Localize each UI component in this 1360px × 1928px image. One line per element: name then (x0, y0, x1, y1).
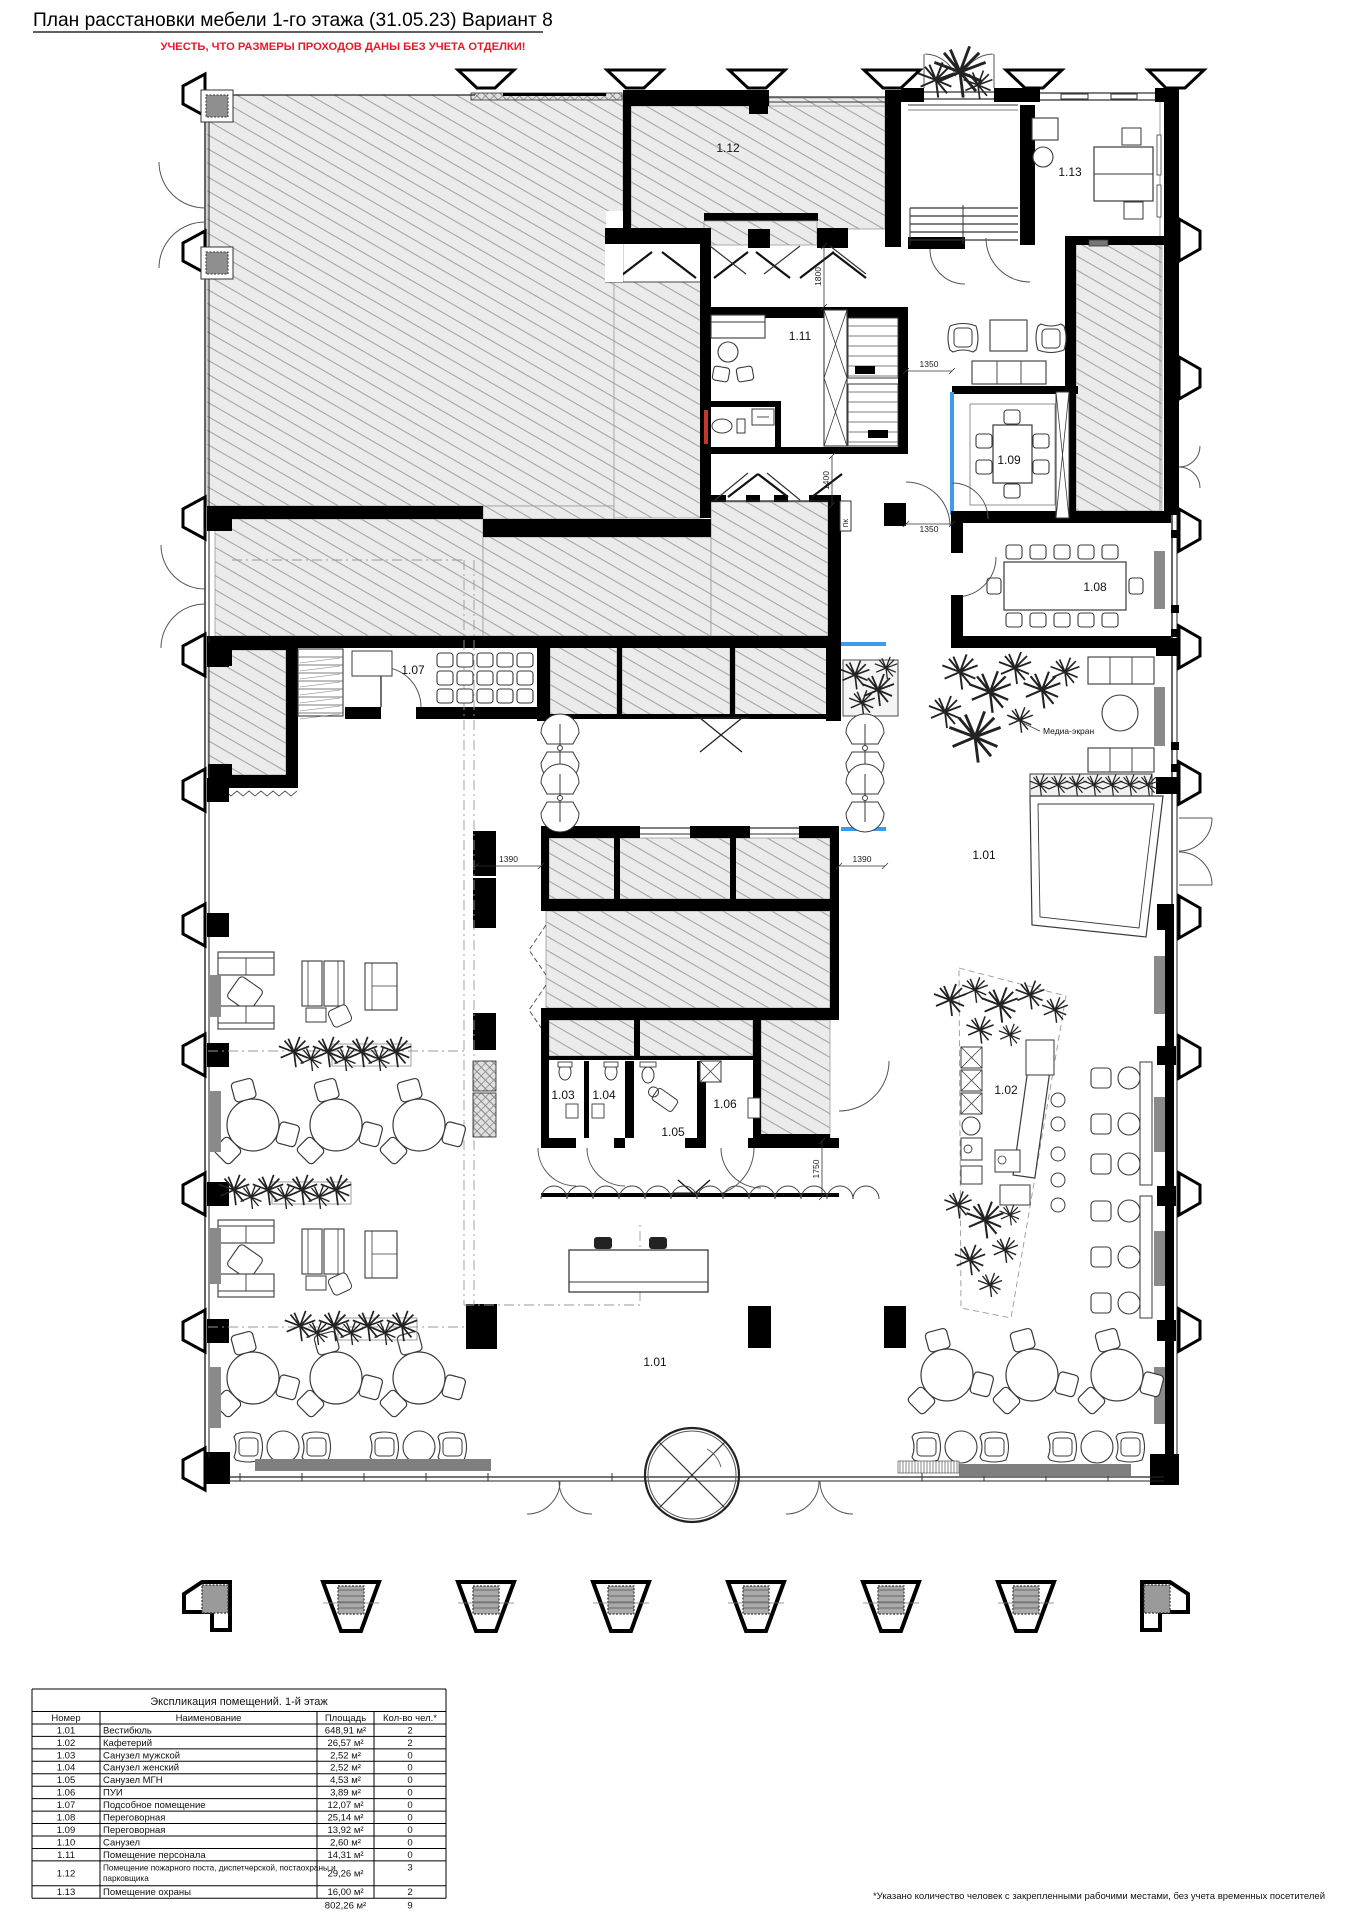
svg-text:1.09: 1.09 (997, 453, 1021, 467)
svg-text:1.01: 1.01 (643, 1355, 667, 1369)
svg-text:1.01: 1.01 (972, 848, 996, 862)
svg-text:УЧЕСТЬ, ЧТО РАЗМЕРЫ ПРОХОДОВ Д: УЧЕСТЬ, ЧТО РАЗМЕРЫ ПРОХОДОВ ДАНЫ БЕЗ УЧ… (160, 41, 525, 53)
svg-text:Наименование: Наименование (176, 1713, 242, 1724)
svg-text:Кафетерий: Кафетерий (103, 1738, 152, 1749)
svg-text:1750: 1750 (811, 1159, 821, 1178)
svg-text:ПУИ: ПУИ (103, 1788, 123, 1799)
svg-text:1.02: 1.02 (994, 1083, 1018, 1097)
svg-text:1.06: 1.06 (57, 1788, 76, 1799)
svg-text:1.05: 1.05 (661, 1125, 685, 1139)
svg-text:1350: 1350 (920, 524, 939, 534)
svg-text:1390: 1390 (853, 854, 872, 864)
svg-text:0: 0 (407, 1800, 412, 1811)
svg-text:1.04: 1.04 (592, 1088, 616, 1102)
svg-text:1.13: 1.13 (57, 1887, 76, 1898)
svg-text:Площадь: Площадь (325, 1713, 366, 1724)
svg-text:Экспликация помещений. 1-й эта: Экспликация помещений. 1-й этаж (150, 1696, 328, 1708)
svg-text:0: 0 (407, 1775, 412, 1786)
svg-text:9: 9 (407, 1900, 412, 1911)
svg-text:0: 0 (407, 1813, 412, 1824)
svg-text:3,89 м²: 3,89 м² (330, 1788, 361, 1799)
svg-text:Вестибюль: Вестибюль (103, 1725, 152, 1736)
svg-text:1.03: 1.03 (551, 1088, 575, 1102)
svg-text:2: 2 (407, 1738, 412, 1749)
svg-text:Санузел женский: Санузел женский (103, 1763, 179, 1774)
svg-text:Помещение персонала: Помещение персонала (103, 1850, 206, 1861)
svg-text:3: 3 (407, 1863, 412, 1874)
svg-text:1400: 1400 (821, 471, 831, 490)
svg-text:Номер: Номер (51, 1713, 80, 1724)
svg-text:Санузел мужской: Санузел мужской (103, 1750, 180, 1761)
svg-text:1.12: 1.12 (57, 1869, 76, 1880)
svg-text:1.06: 1.06 (713, 1097, 737, 1111)
svg-text:1.11: 1.11 (57, 1850, 75, 1861)
svg-text:1.13: 1.13 (1058, 165, 1082, 179)
svg-text:13,92 м²: 13,92 м² (327, 1825, 363, 1836)
svg-text:29,26 м²: 29,26 м² (327, 1869, 363, 1880)
svg-text:1.07: 1.07 (57, 1800, 76, 1811)
svg-text:16,00 м²: 16,00 м² (327, 1887, 363, 1898)
svg-text:Санузел: Санузел (103, 1837, 140, 1848)
svg-text:Помещение пожарного поста, дис: Помещение пожарного поста, диспетчерской… (103, 1863, 336, 1872)
svg-text:1.03: 1.03 (57, 1750, 76, 1761)
svg-text:1.01: 1.01 (57, 1725, 76, 1736)
svg-text:1.10: 1.10 (57, 1837, 76, 1848)
svg-text:14,31 м²: 14,31 м² (327, 1850, 363, 1861)
svg-text:Медиа-экран: Медиа-экран (1043, 726, 1094, 736)
svg-text:Кол-во чел.*: Кол-во чел.* (383, 1713, 437, 1724)
svg-text:802,26 м²: 802,26 м² (325, 1900, 366, 1911)
svg-text:2,52 м²: 2,52 м² (330, 1763, 361, 1774)
svg-text:1.02: 1.02 (57, 1738, 76, 1749)
svg-text:1.09: 1.09 (57, 1825, 76, 1836)
svg-text:Помещение охраны: Помещение охраны (103, 1887, 191, 1898)
svg-text:0: 0 (407, 1750, 412, 1761)
svg-text:Переговорная: Переговорная (103, 1813, 165, 1824)
svg-text:25,14 м²: 25,14 м² (327, 1813, 363, 1824)
svg-text:1.11: 1.11 (789, 329, 812, 343)
svg-text:1800: 1800 (813, 267, 823, 286)
svg-text:26,57 м²: 26,57 м² (327, 1738, 363, 1749)
svg-text:0: 0 (407, 1825, 412, 1836)
svg-text:648,91 м²: 648,91 м² (325, 1725, 366, 1736)
svg-text:0: 0 (407, 1850, 412, 1861)
svg-text:1390: 1390 (499, 854, 518, 864)
svg-text:1.12: 1.12 (716, 141, 740, 155)
svg-text:0: 0 (407, 1763, 412, 1774)
svg-text:0: 0 (407, 1837, 412, 1848)
svg-text:1.07: 1.07 (401, 663, 425, 677)
svg-text:4,53 м²: 4,53 м² (330, 1775, 361, 1786)
svg-text:1.04: 1.04 (57, 1763, 76, 1774)
svg-text:Подсобное помещение: Подсобное помещение (103, 1800, 206, 1811)
svg-text:2,60 м²: 2,60 м² (330, 1837, 361, 1848)
svg-text:ПК: ПК (843, 519, 850, 528)
svg-text:1.08: 1.08 (1083, 580, 1107, 594)
svg-text:2: 2 (407, 1887, 412, 1898)
svg-text:парковщика: парковщика (103, 1874, 149, 1883)
svg-text:2,52 м²: 2,52 м² (330, 1750, 361, 1761)
svg-text:1350: 1350 (920, 359, 939, 369)
svg-text:Переговорная: Переговорная (103, 1825, 165, 1836)
svg-text:1.08: 1.08 (57, 1813, 76, 1824)
svg-text:*Указано количество человек с: *Указано количество человек с закрепленн… (873, 1891, 1325, 1902)
svg-text:1.05: 1.05 (57, 1775, 76, 1786)
svg-text:Санузел МГН: Санузел МГН (103, 1775, 163, 1786)
svg-text:2: 2 (407, 1725, 412, 1736)
svg-text:0: 0 (407, 1788, 412, 1799)
svg-text:12,07 м²: 12,07 м² (327, 1800, 363, 1811)
svg-text:План расстановки мебели 1-го э: План расстановки мебели 1-го этажа (31.0… (33, 10, 553, 31)
